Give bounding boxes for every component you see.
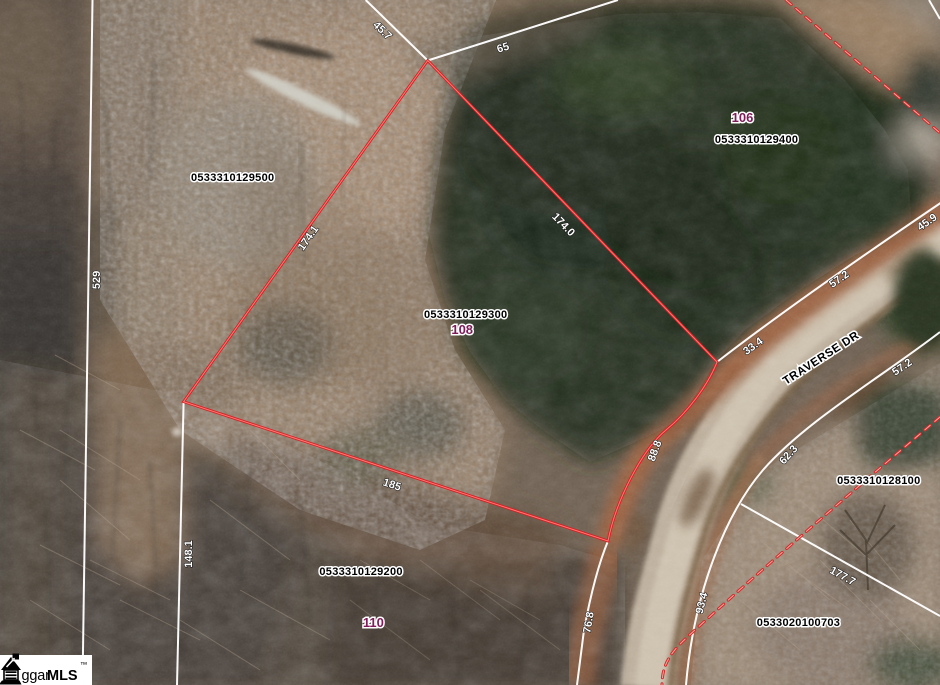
svg-text:108: 108 [451,322,473,337]
svg-text:ggar: ggar [22,668,51,684]
svg-text:MLS: MLS [47,668,78,684]
svg-text:110: 110 [363,615,384,630]
svg-text:0533310129400: 0533310129400 [715,134,798,146]
svg-text:0533310129300: 0533310129300 [424,309,507,321]
svg-text:0533310129500: 0533310129500 [191,172,274,184]
svg-text:529: 529 [91,271,103,289]
svg-text:0533310129200: 0533310129200 [319,566,402,578]
svg-text:™: ™ [80,660,88,669]
svg-text:148.1: 148.1 [183,540,195,568]
svg-text:0533020100703: 0533020100703 [757,617,840,629]
svg-text:0533310128100: 0533310128100 [837,475,920,487]
svg-text:106: 106 [732,110,754,125]
